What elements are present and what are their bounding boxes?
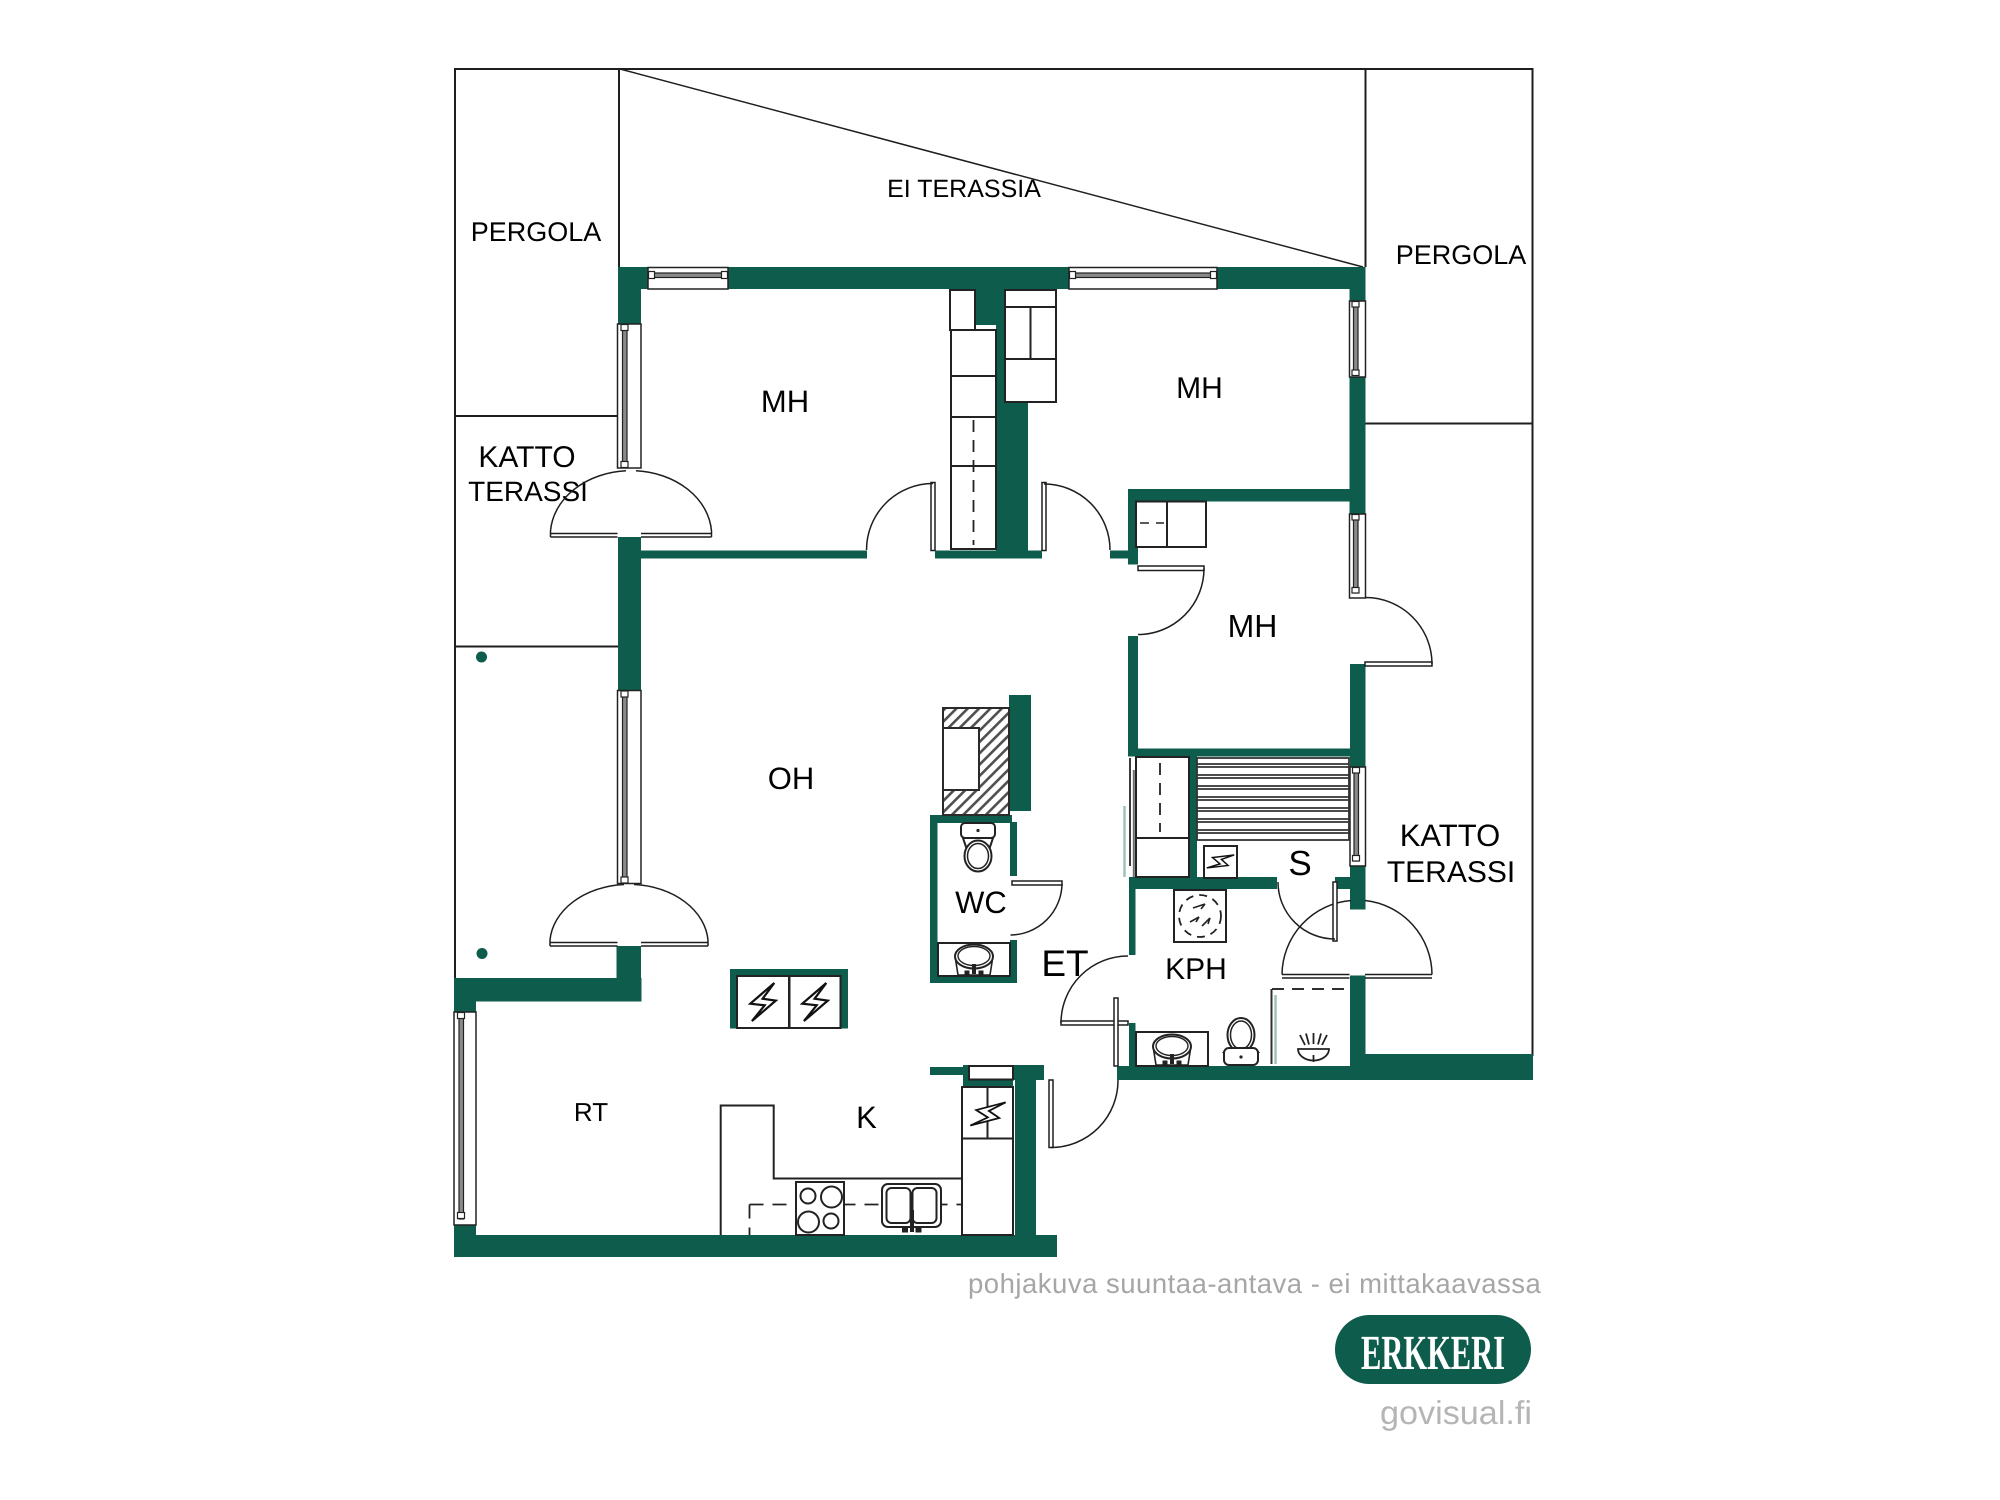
svg-text:K: K — [856, 1100, 877, 1135]
svg-text:WC: WC — [955, 885, 1007, 920]
svg-text:OH: OH — [768, 761, 815, 796]
svg-text:KPH: KPH — [1165, 953, 1227, 986]
svg-text:RT: RT — [574, 1097, 608, 1127]
svg-text:KATTO: KATTO — [1400, 818, 1500, 853]
svg-text:ET: ET — [1041, 943, 1088, 984]
svg-text:govisual.fi: govisual.fi — [1380, 1394, 1532, 1431]
svg-text:TERASSI: TERASSI — [468, 476, 588, 507]
svg-text:PERGOLA: PERGOLA — [1396, 240, 1527, 270]
svg-text:MH: MH — [761, 384, 809, 419]
svg-text:pohjakuva suuntaa-antava - ei: pohjakuva suuntaa-antava - ei mittakaava… — [968, 1268, 1542, 1299]
svg-text:TERASSI: TERASSI — [1387, 856, 1515, 889]
svg-text:ERKKERI: ERKKERI — [1361, 1325, 1505, 1380]
svg-text:KATTO: KATTO — [478, 441, 575, 474]
svg-text:EI TERASSIA: EI TERASSIA — [887, 175, 1041, 203]
svg-text:S: S — [1288, 844, 1311, 883]
svg-text:PERGOLA: PERGOLA — [471, 217, 602, 247]
svg-text:MH: MH — [1176, 372, 1223, 405]
svg-text:MH: MH — [1228, 608, 1278, 644]
